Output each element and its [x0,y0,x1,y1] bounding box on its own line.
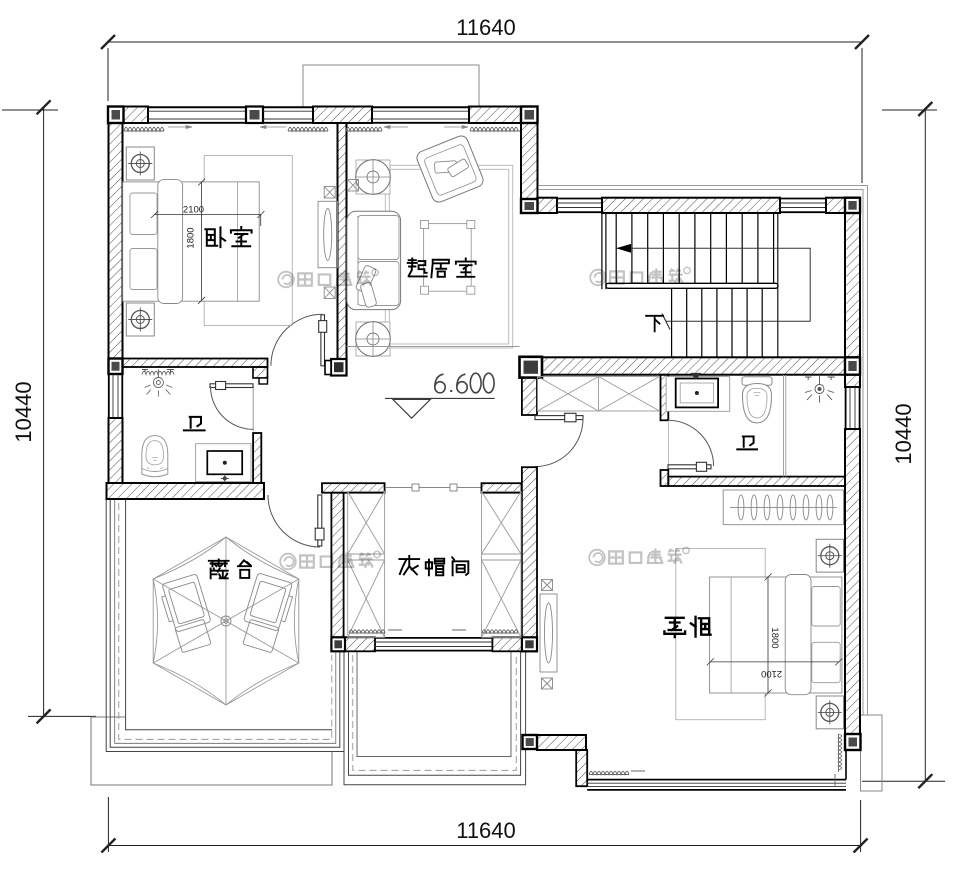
svg-text:10440: 10440 [891,403,916,464]
svg-text:1800: 1800 [186,227,197,248]
svg-text:11640: 11640 [456,818,516,843]
svg-text:11640: 11640 [456,15,516,40]
svg-text:2100: 2100 [183,204,204,215]
svg-text:1800: 1800 [769,627,780,648]
svg-text:2100: 2100 [761,668,782,679]
svg-text:10440: 10440 [11,381,36,442]
